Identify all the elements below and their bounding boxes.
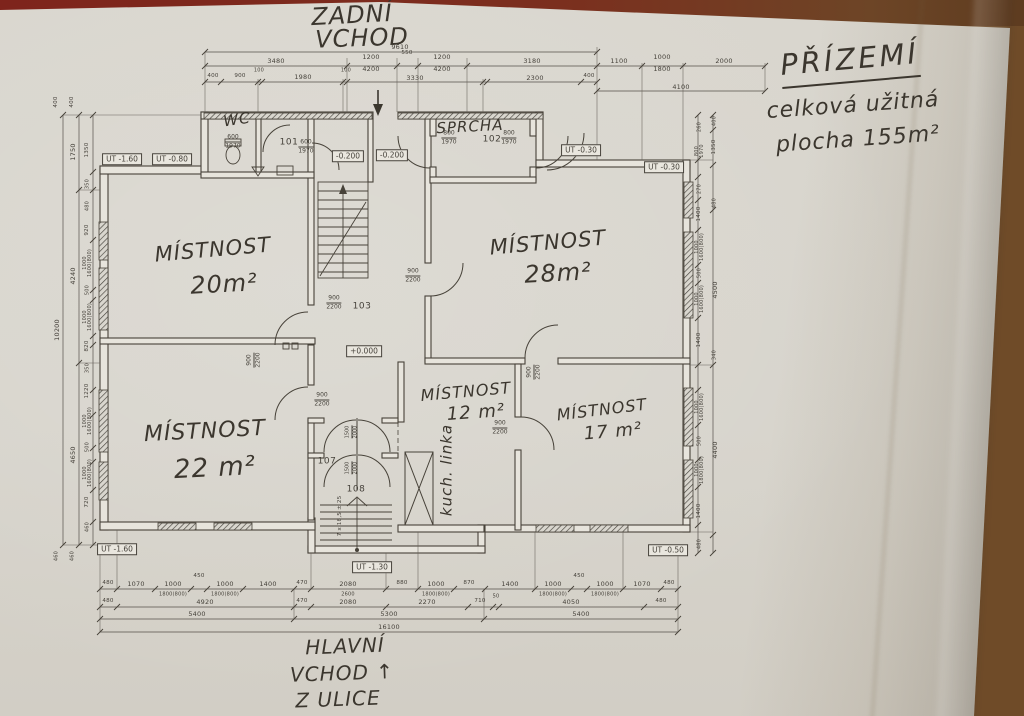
dimension-left: 720 bbox=[85, 496, 91, 507]
dimension-top: 2300 bbox=[526, 75, 543, 82]
dimension-top: 1200 bbox=[433, 54, 450, 61]
dimension-right: 4500 bbox=[712, 281, 719, 298]
dimension-left: 500 bbox=[86, 285, 91, 295]
room-28-name: MÍSTNOST bbox=[489, 227, 607, 258]
dimension-left: 920 bbox=[85, 224, 91, 235]
door-size-label: 8001970 bbox=[501, 131, 516, 146]
dimension-bottom: 470 bbox=[296, 581, 307, 587]
dimension-top: 2000 bbox=[715, 58, 732, 65]
dimension-bottom: 450 bbox=[193, 574, 204, 580]
dimension-right: 500 bbox=[698, 436, 703, 446]
dimension-bottom: 1800(800) bbox=[211, 593, 239, 598]
main-entrance-note-line3: Z ULICE bbox=[295, 688, 381, 711]
dimension-right: 480 bbox=[698, 539, 703, 549]
dimension-right: 400 bbox=[713, 116, 718, 126]
dimension-bottom: 4920 bbox=[196, 599, 213, 606]
main-entrance-note-line2: VCHOD ↑ bbox=[290, 661, 395, 685]
dimension-bottom: 1000 bbox=[596, 581, 613, 588]
dimension-bottom: 2080 bbox=[339, 581, 356, 588]
dimension-left: 480 bbox=[86, 201, 91, 211]
dimension-top: 3180 bbox=[523, 58, 540, 65]
dimension-left: 10001600(800) bbox=[83, 249, 93, 277]
level-marker: UT -0.30 bbox=[561, 144, 601, 156]
dimension-bottom: 5400 bbox=[572, 611, 589, 618]
room-20-area: 20m² bbox=[190, 270, 259, 298]
dimension-left: 350 bbox=[86, 363, 91, 373]
dimension-bottom: 1000 bbox=[544, 581, 561, 588]
dimension-bottom: 480 bbox=[655, 599, 666, 605]
dimension-right: 260 bbox=[698, 122, 703, 132]
dimension-bottom: 870 bbox=[463, 581, 474, 587]
dimension-right: 1400 bbox=[697, 332, 703, 347]
level-marker: UT -0.30 bbox=[644, 161, 684, 173]
dimension-bottom: 1000 bbox=[216, 581, 233, 588]
dimension-bottom: 1070 bbox=[127, 581, 144, 588]
main-entrance-note-line1: HLAVNÍ bbox=[305, 635, 385, 658]
level-marker: -0.200 bbox=[332, 150, 364, 162]
dimension-right: 10001800(800) bbox=[695, 456, 705, 484]
dimension-bottom: 5300 bbox=[380, 611, 397, 618]
level-marker: -0.200 bbox=[376, 149, 408, 161]
stair-note: 7 x 18,5 ± 25 bbox=[338, 496, 344, 537]
dimension-bottom: 480 bbox=[663, 581, 674, 587]
room-22-area: 22 m² bbox=[173, 453, 256, 483]
dimension-right: 1400 bbox=[697, 206, 703, 221]
dimension-left: 350 bbox=[86, 179, 91, 189]
dimension-top: 4200 bbox=[433, 66, 450, 73]
dimension-top: 1800 bbox=[653, 66, 670, 73]
floor-title: PŘÍZEMÍ bbox=[779, 39, 921, 89]
dimension-bottom: 470 bbox=[296, 599, 307, 605]
floor-subtitle-line2: plocha 155m² bbox=[775, 123, 940, 156]
dimension-top: 550 bbox=[401, 51, 412, 57]
level-marker: UT -0.80 bbox=[152, 153, 192, 165]
dimension-bottom: 1800(800) bbox=[591, 593, 619, 598]
dimension-top: 1100 bbox=[610, 58, 627, 65]
dimension-top: 1980 bbox=[294, 74, 311, 81]
dimension-bottom: 1000 bbox=[164, 581, 181, 588]
dimension-right: 270 bbox=[698, 184, 703, 194]
door-size-label: 9002200 bbox=[405, 269, 420, 284]
door-size-label: 9002200 bbox=[314, 393, 329, 408]
dimension-left: 10001600(800) bbox=[83, 407, 93, 435]
dimension-left: 500 bbox=[86, 442, 91, 452]
dimension-left: 1350 bbox=[85, 142, 91, 157]
dimension-top: 3480 bbox=[267, 58, 284, 65]
door-size-label: 15002000 bbox=[346, 462, 359, 475]
dimension-right: 1350 bbox=[712, 139, 718, 154]
dimension-left: 460 bbox=[71, 551, 76, 561]
room-17-area: 17 m² bbox=[583, 420, 643, 443]
level-marker: UT -1.60 bbox=[102, 153, 142, 165]
dimension-top: 400 bbox=[207, 74, 218, 80]
dimension-left: 400 bbox=[70, 96, 76, 107]
dimension-bottom: 4050 bbox=[562, 599, 579, 606]
dimension-bottom: 50 bbox=[493, 595, 500, 600]
door-size-label: 6001970 bbox=[298, 140, 313, 155]
room-number: 102 bbox=[483, 136, 502, 145]
dimension-bottom: 1800(800) bbox=[539, 593, 567, 598]
dimension-left: 10200 bbox=[54, 319, 61, 341]
dimension-top: 3330 bbox=[406, 75, 423, 82]
dimension-left: 1220 bbox=[85, 383, 91, 398]
dimension-bottom: 880 bbox=[396, 581, 407, 587]
dimension-left: 10001600(800) bbox=[83, 303, 93, 331]
plan-labels: ZADNÍ VCHOD PŘÍZEMÍ celková užitná ploch… bbox=[0, 0, 1024, 716]
dimension-left: 400 bbox=[54, 96, 60, 107]
room-number: 108 bbox=[347, 486, 366, 495]
dimension-right: 10001600(800) bbox=[695, 393, 705, 421]
dimension-top: 1000 bbox=[653, 54, 670, 61]
dimension-left: 10001600(800) bbox=[83, 459, 93, 487]
dimension-right: 8001970 bbox=[695, 144, 705, 158]
door-size-label: 6001970 bbox=[225, 135, 240, 150]
dimension-left: 4650 bbox=[70, 446, 77, 463]
dimension-bottom: 1800(800) bbox=[422, 593, 450, 598]
dimension-right: 480 bbox=[713, 198, 718, 208]
kitchen-unit-label: kuch. linka bbox=[440, 424, 455, 516]
dimension-left: 4240 bbox=[70, 267, 77, 284]
dimension-top: 400 bbox=[583, 74, 594, 80]
level-marker: UT -1.30 bbox=[352, 561, 392, 573]
dimension-left: 1750 bbox=[70, 143, 77, 160]
level-marker: UT -1.60 bbox=[97, 543, 137, 555]
dimension-left: 460 bbox=[55, 551, 60, 561]
level-marker: UT -0.50 bbox=[648, 544, 688, 556]
door-size-label: 9002200 bbox=[247, 352, 262, 367]
dimension-bottom: 1400 bbox=[259, 581, 276, 588]
dimension-bottom: 1800(800) bbox=[159, 593, 187, 598]
dimension-top: 900 bbox=[234, 74, 245, 80]
door-size-label: 15002000 bbox=[346, 426, 359, 439]
door-size-label: 9002200 bbox=[492, 421, 507, 436]
dimension-bottom: 480 bbox=[102, 599, 113, 605]
room-20-name: MÍSTNOST bbox=[154, 234, 272, 265]
room-22-name: MÍSTNOST bbox=[143, 418, 266, 446]
dimension-bottom: 2270 bbox=[418, 599, 435, 606]
dimension-bottom: 1070 bbox=[633, 581, 650, 588]
dimension-bottom: 16100 bbox=[378, 624, 400, 631]
dimension-top: 100 bbox=[341, 69, 351, 74]
room-number: 103 bbox=[353, 303, 372, 312]
floor-subtitle-line1: celková užitná bbox=[766, 89, 940, 123]
door-size-label: 9002200 bbox=[326, 296, 341, 311]
dimension-bottom: 5400 bbox=[188, 611, 205, 618]
dimension-right: 500 bbox=[698, 268, 703, 278]
level-marker: +0.000 bbox=[346, 345, 382, 357]
dimension-top: 4200 bbox=[362, 66, 379, 73]
dimension-bottom: 450 bbox=[573, 574, 584, 580]
room-28-area: 28m² bbox=[524, 259, 593, 287]
dimension-top: 100 bbox=[254, 69, 264, 74]
dimension-bottom: 1400 bbox=[501, 581, 518, 588]
dimension-right: 10001600(800) bbox=[695, 285, 705, 313]
wc-label: WC bbox=[222, 111, 251, 130]
door-size-label: 9002200 bbox=[527, 364, 542, 379]
room-number: 107 bbox=[318, 458, 337, 467]
dimension-bottom: 2080 bbox=[339, 599, 356, 606]
dimension-right: 10001600(800) bbox=[695, 233, 705, 261]
dimension-top: 1200 bbox=[362, 54, 379, 61]
dimension-bottom: 710 bbox=[474, 599, 485, 605]
scanned-floor-plan: ZADNÍ VCHOD PŘÍZEMÍ celková užitná ploch… bbox=[0, 0, 1024, 716]
door-size-label: 8001970 bbox=[441, 131, 456, 146]
dimension-left: 820 bbox=[85, 340, 91, 351]
dimension-left: 460 bbox=[86, 522, 91, 532]
dimension-right: 4400 bbox=[712, 441, 719, 458]
dimension-bottom: 480 bbox=[102, 581, 113, 587]
dimension-top: 4100 bbox=[672, 84, 689, 91]
dimension-bottom: 1000 bbox=[427, 581, 444, 588]
dimension-right: 340 bbox=[713, 350, 718, 360]
dimension-bottom: 2600 bbox=[341, 593, 355, 598]
dimension-right: 1400 bbox=[697, 503, 703, 518]
room-number: 101 bbox=[280, 139, 299, 148]
